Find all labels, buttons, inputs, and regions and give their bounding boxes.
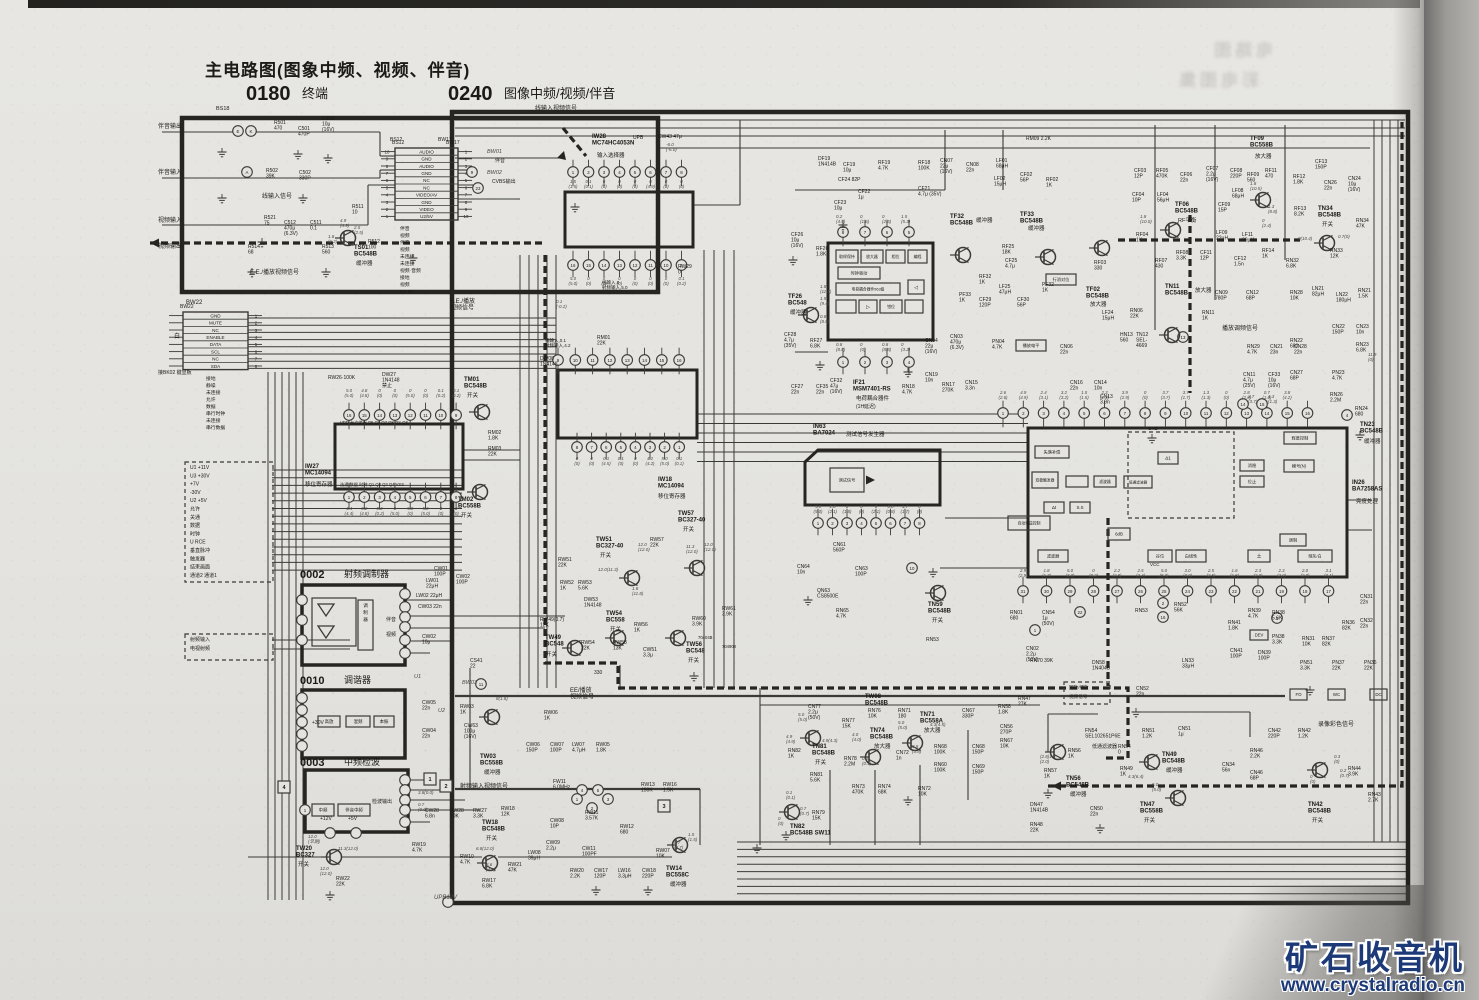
- ic-pin: [400, 817, 411, 828]
- component-label: RW194.7K: [412, 842, 426, 854]
- pin-voltage: 0.1(0.2): [452, 388, 462, 398]
- component-label: RW2147K: [508, 862, 522, 874]
- voltage-note: 0(0): [860, 342, 866, 352]
- component-label: RF平衡: [1178, 216, 1197, 224]
- component-label: DW271N4148禁止: [382, 372, 400, 389]
- function-box-label: 自动增益控制: [1018, 520, 1041, 525]
- component-label: FN54SEL102651P6E: [1085, 728, 1121, 740]
- component-label: 开关: [688, 656, 700, 664]
- component-label: RW561K: [634, 622, 648, 634]
- component-label: LN22180μH: [1336, 292, 1351, 304]
- function-box-label: 中频: [319, 807, 328, 814]
- component-label: CW01100P: [434, 566, 448, 578]
- ic-pin-number: 15: [659, 358, 664, 363]
- amp-triangle-icon: [318, 604, 334, 616]
- pin-voltage: 4.4(4.4): [344, 506, 354, 516]
- voltage-note: 8(1.8): [496, 696, 508, 701]
- page-edge-curve: [1392, 0, 1424, 1000]
- component-label: LW163.3μH: [618, 868, 632, 880]
- function-box: [905, 300, 923, 313]
- list-line: 数据: [206, 403, 216, 410]
- ic-pin-number: E: [237, 129, 240, 134]
- voltage-note: 3.7(3.7): [1248, 394, 1258, 404]
- component-label: CN67330P: [962, 708, 975, 720]
- component-label: CF1910μ: [843, 162, 855, 174]
- list-line: 视频: [400, 246, 410, 253]
- component-label: TN74BC548B: [870, 728, 894, 741]
- ic-pin-number: 16: [347, 413, 352, 418]
- component-label: CN1910n: [925, 372, 938, 384]
- component-label: PF331K: [959, 292, 971, 304]
- component-label: RW13150K: [641, 782, 655, 794]
- step-number: 3: [662, 804, 665, 810]
- component-label: DF191N414B: [818, 156, 837, 168]
- component-label: RF07430: [1155, 258, 1167, 270]
- ic-pin-number: 24: [1185, 589, 1190, 594]
- connector-pin-label: SCL: [211, 349, 220, 354]
- component-label: CF3247μ(16V): [830, 378, 843, 395]
- pin-voltage: 0(5.0): [406, 388, 416, 398]
- function-box-label: 相位: [892, 254, 900, 259]
- function-box-label: 消隐: [1248, 462, 1256, 469]
- pin-voltage: 0(0): [1224, 390, 1230, 400]
- component-label: C502330P: [299, 170, 311, 182]
- component-label: 缓冲器: [976, 216, 993, 224]
- voltage-note: 0(0): [778, 816, 784, 826]
- voltage-note: 4.9(4.3): [822, 738, 838, 743]
- component-label: LW02 22μH: [416, 593, 443, 599]
- ic-pin-number: 10: [438, 413, 443, 418]
- component-label: RN73470K: [852, 784, 865, 796]
- component-label: DN39100P: [1258, 650, 1271, 662]
- dashed-signal-path: [545, 255, 905, 688]
- component-label: CW43 47μ: [658, 134, 682, 140]
- component-label: R512100: [368, 239, 380, 251]
- connector-pin-label: AUDIO: [419, 149, 434, 154]
- component-label: RF041K: [1136, 232, 1148, 244]
- voltage-note: 0.7(0.0): [418, 802, 428, 812]
- function-box-label: 钳位: [887, 304, 895, 309]
- component-label: CF214.7μ (35V): [918, 186, 942, 198]
- component-label: CN56270P: [1000, 724, 1013, 736]
- function-box-label: 行消对位: [1053, 276, 1070, 283]
- component-label: RF03330: [1094, 260, 1106, 272]
- component-label: 开关: [467, 391, 479, 399]
- component-label: (1H延迟): [856, 403, 876, 410]
- pin-voltage: 0(0): [632, 276, 638, 286]
- component-label: 开关: [683, 525, 695, 533]
- component-label: CW06150P: [526, 742, 540, 754]
- dashed-box-line: 触发器: [190, 555, 205, 562]
- component-label: LF0456μH: [1157, 192, 1169, 204]
- component-label: LF0922μH: [1216, 230, 1228, 242]
- component-label: CN2622n: [1324, 180, 1337, 192]
- voltage-note: (2.8)1.8(2.0): [1040, 754, 1056, 764]
- ic-pin-number: 19: [1279, 589, 1284, 594]
- voltage-note: 11.3(12.0): [338, 846, 359, 851]
- component-label: 开关: [932, 616, 944, 624]
- component-label: TF06BC548B: [1175, 202, 1199, 215]
- pin-voltage: 0(0): [633, 456, 639, 466]
- pin-voltage: 2.4(3.1): [1039, 390, 1049, 400]
- component-label: RN294.7K: [1247, 344, 1260, 356]
- component-label: RN70 39K: [1030, 658, 1054, 664]
- watermark-logo: 矿石收音机: [1281, 941, 1465, 976]
- pin-voltage: 0(0): [574, 456, 580, 466]
- pin-voltage: 0.1(0.1): [675, 456, 685, 466]
- list-line: 未连接: [206, 417, 221, 424]
- component-label: RW202.2K: [570, 868, 584, 880]
- component-label: 704908: [722, 644, 737, 649]
- component-label: RW5722K: [650, 537, 664, 549]
- component-label: RF321K: [979, 274, 991, 286]
- voltage-note: 0(1.6): [860, 214, 870, 224]
- component-label: PN3622K: [1364, 660, 1377, 672]
- ic-pin: [400, 589, 411, 600]
- component-label: 线输入,0.1射频输入,4.2: [545, 337, 571, 349]
- component-label: R513560: [322, 244, 334, 256]
- component-label: HN13560: [1120, 332, 1133, 344]
- component-label: CW02100P: [456, 574, 470, 586]
- pin-voltage: 0(0): [377, 388, 383, 398]
- component-label: 亮度处理: [1356, 497, 1379, 505]
- component-label: RN68100K: [934, 744, 947, 756]
- ic-box: [558, 370, 697, 438]
- ic-pin-number: 18: [1303, 589, 1308, 594]
- component-label: R51468: [248, 244, 260, 256]
- pin-voltage: 0.1(4.5): [602, 456, 612, 466]
- component-label: TN23BC548B: [1360, 422, 1384, 435]
- component-label: RN821K: [788, 748, 801, 760]
- voltage-note: 1.5(1.5): [688, 832, 698, 842]
- voltage-note: -6.0(-6.0): [666, 142, 677, 152]
- voltage-note: 4.9(4.9): [340, 218, 350, 228]
- component-label: BW22: [186, 300, 203, 306]
- section-name-0010: 调谐器: [344, 675, 371, 685]
- connector-pin-label: AUDIO: [419, 164, 434, 169]
- voltage-note: 6.8(12.0): [476, 846, 495, 851]
- component-label: RN2810K: [1290, 290, 1303, 302]
- pin-voltage: 1.6(1.5): [1230, 568, 1240, 578]
- component-label: CW07100P: [550, 742, 564, 754]
- voltage-note: 4.9(4.9): [786, 734, 796, 744]
- component-label: 放大器: [1090, 300, 1107, 308]
- voltage-note: 0.1(0.1): [862, 756, 872, 766]
- dashed-box-line: 结束画面: [190, 564, 210, 571]
- component-label: RW535.6K: [578, 580, 592, 592]
- component-label: TW18BC548B: [482, 820, 506, 833]
- function-box-label: S.S: [1076, 505, 1083, 510]
- connector-pin-label: NC: [423, 178, 430, 183]
- list-line: 未连接: [400, 260, 415, 267]
- component-label: 视频输出: [158, 242, 182, 250]
- function-box-label: 白线性: [1185, 553, 1198, 560]
- component-label: TN59BC548B: [928, 602, 952, 615]
- watermark: 矿石收音机 www.crystalradio.cn: [1281, 941, 1465, 996]
- ic-pin-number: 14: [1241, 402, 1246, 407]
- component-label: CF08220P: [1230, 168, 1242, 180]
- dashed-box-line: U2 +5V: [190, 498, 207, 504]
- voltage-note: 11.3(12.0): [686, 544, 698, 554]
- voltage-note: BW02: [487, 170, 502, 176]
- ic-pin-number: 11: [590, 358, 595, 363]
- component-label: +30V: [312, 720, 324, 726]
- dashed-box-line: 电视射频: [190, 645, 210, 652]
- component-label: CN3122n: [1360, 594, 1373, 606]
- pin-voltage: 0.1(0.1): [584, 179, 594, 189]
- component-label: RW12680: [620, 824, 634, 836]
- dashed-signal-path: [563, 128, 586, 156]
- component-label: CF121.5n: [1234, 256, 1246, 268]
- component-label: CN2123n: [1270, 344, 1283, 356]
- component-label: RN581.8K: [998, 704, 1011, 716]
- component-label: IW18MC14094: [658, 477, 685, 490]
- voltage-note: U1: [414, 674, 421, 680]
- component-label: CN2822n: [1294, 344, 1307, 356]
- function-box-label: 6dB: [1115, 532, 1123, 537]
- dashed-box-line: 视频信号: [1069, 693, 1088, 700]
- ic-pin-number: 10: [1183, 411, 1188, 416]
- pin-voltage: 2.0(2.0): [1300, 568, 1310, 578]
- component-label: LF0168μH: [996, 158, 1008, 170]
- component-label: 测试信号发生器: [846, 430, 885, 438]
- pin-voltage: 0(0): [1142, 390, 1148, 400]
- component-label: RN462.2K: [1250, 748, 1263, 760]
- component-label: RN3782K: [1322, 636, 1335, 648]
- pin-voltage: 0.1(0.2): [436, 388, 446, 398]
- pin-voltage: 0(5.0): [390, 506, 400, 516]
- component-label: PN044.7K: [992, 339, 1005, 351]
- voltage-note: 3.8(0.0): [418, 790, 434, 795]
- dashed-box-line: U3 +30V: [190, 473, 210, 479]
- section-box-0240: [452, 112, 1408, 903]
- component-label: CF29120P: [979, 297, 991, 309]
- component-label: 移位寄存器: [305, 480, 333, 488]
- voltage-note: 2.5(2.5): [353, 225, 364, 235]
- voltage-note: 0.7(0.7): [800, 806, 810, 816]
- list-line: 伴音: [400, 225, 410, 232]
- component-label: CW17120P: [594, 868, 608, 880]
- schematic-canvas: 0180终端0240图像中频/视频/伴音0002射频调制器0010调谐器0003…: [0, 0, 1479, 1000]
- arrowhead-icon: [557, 151, 566, 160]
- component-label: CW0210μ: [422, 634, 436, 646]
- pin-voltage: 0(0): [601, 179, 607, 189]
- component-label: CF3310μ(16V): [1268, 372, 1281, 389]
- function-box-label: ◁: [914, 285, 918, 291]
- function-box-label: WC: [1333, 692, 1340, 697]
- component-label: RN7468K: [878, 784, 891, 796]
- voltage-note: 5.0(5.0): [798, 712, 808, 722]
- function-box-label: Δ1: [1165, 456, 1171, 461]
- ic-pin-number: 13: [1181, 335, 1186, 340]
- ic-pin-number: 30: [1044, 589, 1049, 594]
- ic-pin-number: 31: [1021, 589, 1026, 594]
- ic-pin-number: 11: [648, 263, 653, 268]
- component-label: RW113.57K: [585, 810, 599, 822]
- component-label: RN7715K: [842, 718, 855, 730]
- ic-pin-number: 25: [1162, 589, 1167, 594]
- function-box-label: 低通滤波器: [1129, 479, 1148, 484]
- component-label: IN63BA7024: [813, 424, 836, 437]
- component-label: RN3447K: [1356, 218, 1369, 230]
- ic-pin-number: 29: [1068, 589, 1073, 594]
- ic-pin-number: 11: [1204, 411, 1209, 416]
- component-label: RM0122K: [597, 335, 611, 347]
- ic-pin-number: 14: [1264, 411, 1269, 416]
- pin-voltage: 5.0(0): [407, 506, 414, 516]
- voltage-note: 0.1(0.1): [786, 790, 796, 800]
- component-label: 伴音: [386, 616, 396, 623]
- component-label: 伴音输入: [158, 168, 182, 176]
- amp-triangle-icon: [318, 626, 334, 638]
- connector-pin-label: VIDEO/AV: [416, 193, 438, 198]
- component-label: RW5813K: [613, 640, 627, 652]
- pin-voltage: 0(0): [617, 179, 623, 189]
- component-label: RN571K: [1044, 768, 1057, 780]
- component-label: TF26BC548: [788, 294, 807, 307]
- component-label: TN11BC548B: [1165, 284, 1189, 297]
- dashed-box-line: U RCE: [190, 540, 206, 546]
- component-label: 选通 数据 时钟 Q1 Q2 Q3 Q4 VSS: [340, 481, 404, 488]
- component-label: TW54BC558: [606, 611, 625, 624]
- component-label: TW03BC558B: [480, 754, 504, 767]
- dashed-box-line: +7V: [190, 482, 200, 488]
- function-box-label: 谷位: [1156, 553, 1164, 560]
- component-label: RN4822K: [1030, 822, 1043, 834]
- component-label: LN2182μH: [1312, 286, 1324, 298]
- pin-voltage: 2.2(2.8): [1112, 568, 1122, 578]
- ic-pin-number: 12: [633, 263, 638, 268]
- component-label: RN421.2K: [1298, 728, 1311, 740]
- component-label: 放大器: [924, 726, 941, 734]
- ic-pin-number: 15: [1260, 402, 1265, 407]
- ic-box: [335, 424, 463, 489]
- ic-pin-number: 14: [602, 263, 607, 268]
- voltage-note: 3.8(3.8): [912, 744, 922, 754]
- section-name-0240: 图像中频/视频/伴音: [504, 86, 615, 101]
- voltage-note: 0(10.4): [1298, 236, 1313, 241]
- component-label: C50910μ(16V): [322, 116, 335, 133]
- component-label: QN63CS8500E: [817, 588, 839, 600]
- ic-pin: [297, 705, 308, 716]
- component-label: CF0256P: [1020, 172, 1032, 184]
- component-label: 缓冲器: [1166, 766, 1183, 774]
- pin-voltage: 0(0): [423, 388, 429, 398]
- component-label: E.E./播放视频信号: [450, 297, 475, 312]
- ic-pin: [400, 805, 411, 816]
- ic-pin-number: 16: [1305, 411, 1310, 416]
- component-label: CF221μ: [858, 189, 870, 201]
- component-label: CF0410P: [1132, 192, 1144, 204]
- component-label: RW161.5K: [663, 782, 677, 794]
- component-label: BW17: [438, 137, 452, 143]
- component-label: 播放调频信号: [1222, 324, 1258, 332]
- voltage-note: 0.2(4.9): [836, 214, 846, 224]
- component-label: E.E./播放视频信号: [250, 268, 299, 276]
- component-label: 缓冲器: [1028, 224, 1045, 232]
- component-label: TW14BC558C: [666, 866, 690, 879]
- voltage-note: 0.3(0): [1334, 754, 1341, 764]
- component-label: CF072.2μ(16V): [1206, 166, 1219, 183]
- dashed-box-line: 垂直脉冲: [190, 547, 210, 554]
- ic-pin-number: 13: [1244, 411, 1249, 416]
- component-label: RN394.7K: [1248, 608, 1261, 620]
- component-label: RN654.7K: [836, 608, 849, 620]
- function-box-label: 伴音中频: [345, 807, 363, 814]
- component-label: 白: [174, 332, 180, 340]
- pin-voltage: 4.9(4.9): [1019, 390, 1029, 400]
- component-label: 线输入,0射频输入,5.0: [602, 279, 628, 291]
- pin-voltage: 2.5(2.4): [1136, 568, 1146, 578]
- function-box-label: Δt: [1052, 505, 1057, 510]
- component-label: RF083.3K: [1176, 250, 1188, 262]
- component-label: TN82BC548B SW11: [790, 824, 831, 837]
- ic-pin-number: 16: [571, 263, 576, 268]
- component-label: CF2610μ(16V): [791, 232, 804, 249]
- component-label: GND: [1148, 426, 1159, 431]
- step-number: 2: [444, 784, 447, 790]
- component-label: RF194.7K: [878, 160, 890, 172]
- ic-pin: [297, 635, 308, 646]
- component-label: RN17270K: [942, 382, 955, 394]
- ic-pin: [400, 795, 411, 806]
- component-label: RW104.7K: [460, 854, 474, 866]
- connector-pin-label: SDA: [211, 364, 221, 369]
- component-label: RN184.7K: [902, 384, 915, 396]
- section-number-0180: 0180: [246, 83, 291, 105]
- voltage-note: 0.8(8.8): [836, 342, 846, 352]
- function-box-label: 暗灰/白: [1308, 553, 1321, 559]
- ic-pin-number: K: [250, 129, 253, 134]
- component-label: CW63100μ(16V): [464, 723, 478, 740]
- component-label: 录像彩色信号: [1318, 720, 1354, 728]
- voltage-note: 0(2.5): [882, 214, 892, 224]
- component-label: CN42220P: [1268, 728, 1281, 740]
- arrowhead-icon: [1052, 782, 1061, 791]
- function-box-label: 土: [1257, 553, 1262, 559]
- pin-voltage: 5.0(5.0): [660, 456, 670, 466]
- function-box-label: 测试信号: [839, 477, 856, 484]
- component-label: TF02BC548B: [1086, 287, 1110, 300]
- voltage-note: 1.8(11.8): [632, 586, 644, 596]
- pin-voltage: 0(0): [663, 276, 669, 286]
- component-label: 缓冲器: [1364, 437, 1381, 445]
- pin-voltage: 4.8(4.8): [360, 388, 370, 398]
- pin-voltage: 3.7(3.7): [1161, 390, 1171, 400]
- voltage-note: 1.8(11.8): [820, 284, 832, 294]
- component-label: LN3333μH: [1182, 658, 1194, 670]
- function-box-label: 模号(N): [1292, 463, 1307, 470]
- ic-pin-number: 21: [1256, 589, 1261, 594]
- component-label: LW0839μH: [528, 850, 541, 862]
- list-line: U2·5V: [400, 289, 414, 295]
- component-label: RF2518K: [1002, 244, 1014, 256]
- component-label: RW5422K: [581, 640, 595, 652]
- component-label: CN3456n: [1222, 762, 1235, 774]
- dashed-box-line: 时钟: [190, 530, 200, 537]
- voltage-note: 4.3(4.5): [930, 722, 946, 727]
- ic-pin-number: 16: [1161, 615, 1166, 620]
- ic-pin: [297, 595, 308, 606]
- component-label: PF321K: [1042, 282, 1054, 294]
- component-label: CN69150P: [972, 764, 985, 776]
- function-box-label: 时钟驱动: [851, 270, 868, 277]
- component-label: 视频输入: [158, 216, 182, 224]
- component-label: 缓冲器: [670, 880, 687, 888]
- component-label: RN60100K: [934, 762, 947, 774]
- voltage-note: 0.7(0): [1338, 234, 1350, 239]
- component-label: +5V: [348, 816, 358, 822]
